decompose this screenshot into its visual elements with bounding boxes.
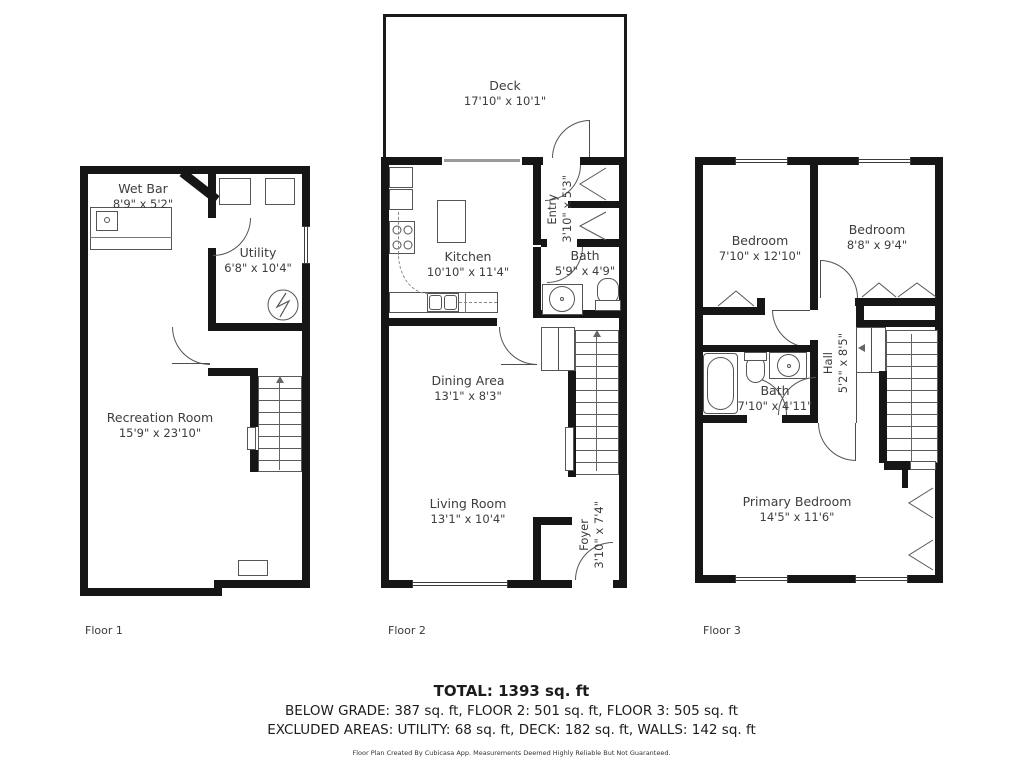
stove-burners-icon xyxy=(389,221,415,254)
wall-segment xyxy=(908,575,943,583)
plan-element xyxy=(268,290,298,320)
fixture-detail xyxy=(560,297,564,301)
wall-segment xyxy=(757,298,765,307)
wall-segment xyxy=(695,157,703,583)
plan-element: Foyer xyxy=(577,519,591,551)
room-name: Deck xyxy=(464,78,546,93)
plan-element: 3'10" x 5'3" xyxy=(560,175,574,243)
utility-window xyxy=(302,226,310,264)
room-label-recreation: Recreation Room 15'9" x 23'10" xyxy=(107,410,213,440)
wall-segment xyxy=(568,201,619,208)
wall-segment xyxy=(788,575,855,583)
wall-segment xyxy=(619,157,627,588)
primary-window xyxy=(855,575,908,583)
plan-element: 3'10" x 7'4" xyxy=(592,501,606,569)
room-dimensions: 17'10" x 10'1" xyxy=(464,94,546,108)
room-label-bath2: Bath 5'9" x 4'9" xyxy=(555,248,615,278)
wall-segment xyxy=(902,470,908,488)
stair-direction-arrow xyxy=(276,376,284,383)
area-breakdown: BELOW GRADE: 387 sq. ft, FLOOR 2: 501 sq… xyxy=(0,703,1023,719)
door-leaf xyxy=(855,423,856,461)
stairs-floor1 xyxy=(258,376,302,472)
rec-room-door-swing xyxy=(172,327,210,365)
stair-direction-arrow xyxy=(858,344,865,352)
floor-opening xyxy=(910,461,936,470)
wall-segment xyxy=(856,320,940,327)
room-dimensions: 13'1" x 10'4" xyxy=(430,512,507,526)
room-label-entry: Entry 3'10" x 5'3" xyxy=(545,180,574,238)
washer xyxy=(219,178,251,205)
kitchen-island xyxy=(437,200,466,243)
room-dimensions: 8'9" x 5'2" xyxy=(113,197,173,211)
wall-segment xyxy=(250,376,258,427)
room-name: Bedroom xyxy=(719,233,801,248)
closet-door-icon xyxy=(898,281,936,298)
window-well xyxy=(238,560,268,576)
room-dimensions: 7'10" x 4'11" xyxy=(738,399,813,413)
room-label-wet-bar: Wet Bar 8'9" x 5'2" xyxy=(113,181,173,211)
wall-segment xyxy=(302,166,310,226)
wall-segment xyxy=(80,166,310,174)
counter-dashed-curve xyxy=(398,254,428,294)
plan-element xyxy=(277,293,289,317)
room-label-primary: Primary Bedroom 14'5" x 11'6" xyxy=(743,494,852,524)
room-name: Utility xyxy=(224,245,292,260)
plan-element xyxy=(580,168,606,200)
stair-direction-arrow xyxy=(593,330,601,337)
plan-element xyxy=(404,226,412,234)
wall-segment xyxy=(884,461,910,470)
wall-segment xyxy=(381,318,497,326)
bedroom-door-swing xyxy=(772,310,810,348)
plan-element xyxy=(909,540,933,570)
plan-element xyxy=(862,283,896,297)
fixture-detail xyxy=(787,364,791,368)
bedroom-window xyxy=(858,157,911,165)
living-room-window xyxy=(412,580,508,588)
door-leaf xyxy=(172,363,210,364)
room-dimensions: 10'10" x 11'4" xyxy=(427,265,509,279)
room-name: Recreation Room xyxy=(107,410,213,425)
wall-segment xyxy=(613,580,627,588)
room-label-foyer: Foyer 3'10" x 7'4" xyxy=(577,506,606,564)
closet-door-icon xyxy=(906,540,934,570)
wall-segment xyxy=(695,345,810,352)
bedroom-door-swing xyxy=(820,260,858,298)
fixture-detail xyxy=(104,217,110,223)
toilet-tank xyxy=(595,300,621,311)
wall-segment xyxy=(533,519,541,580)
room-label-bath3: Bath 7'10" x 4'11" xyxy=(738,383,813,413)
room-label-hall: Hall 5'2" x 8'5" xyxy=(821,333,850,393)
room-name: Dining Area xyxy=(431,373,504,388)
wall-segment xyxy=(381,580,412,588)
primary-window xyxy=(735,575,788,583)
wall-segment xyxy=(208,174,216,218)
floor-line xyxy=(90,237,172,238)
wall-segment xyxy=(810,165,818,298)
wall-segment xyxy=(533,165,541,245)
floor-opening xyxy=(247,427,256,450)
wall-segment xyxy=(80,588,222,596)
wall-segment xyxy=(577,239,627,247)
stair-rail xyxy=(279,382,280,470)
room-label-deck: Deck 17'10" x 10'1" xyxy=(464,78,546,108)
room-label-bedroom-right: Bedroom 8'8" x 9'4" xyxy=(847,222,907,252)
wall-segment xyxy=(788,157,858,165)
total-area: TOTAL: 1393 sq. ft xyxy=(0,682,1023,700)
counter-dashed-line xyxy=(398,212,399,254)
door-leaf xyxy=(589,120,590,158)
wall-segment xyxy=(695,415,747,423)
plan-element xyxy=(718,291,754,306)
door-leaf xyxy=(501,364,537,365)
wall-segment xyxy=(522,157,543,165)
area-summary: TOTAL: 1393 sq. ft BELOW GRADE: 387 sq. … xyxy=(0,682,1023,757)
wall-segment xyxy=(782,415,818,423)
wall-segment xyxy=(208,248,216,330)
wall-segment xyxy=(533,247,541,318)
disclaimer: Floor Plan Created By Cubicasa App. Meas… xyxy=(0,749,1023,757)
wall-segment xyxy=(695,575,735,583)
plan-element: Entry xyxy=(545,194,559,225)
cabinet xyxy=(389,189,413,210)
room-name: Kitchen xyxy=(427,249,509,264)
primary-door-swing xyxy=(818,423,856,461)
dryer xyxy=(265,178,295,205)
stair-rail xyxy=(596,336,597,471)
closet-door-icon xyxy=(906,488,934,518)
bedroom-window xyxy=(735,157,788,165)
wall-segment xyxy=(381,157,389,588)
floor-2-tag: Floor 2 xyxy=(388,624,426,637)
plan-element: 5'2" x 8'5" xyxy=(836,333,850,393)
stairs-floor2 xyxy=(575,330,619,475)
room-dimensions: 8'8" x 9'4" xyxy=(847,238,907,252)
floor-line xyxy=(871,328,872,372)
door-leaf xyxy=(820,260,821,298)
wall-segment xyxy=(879,371,887,463)
floor-line xyxy=(558,328,559,370)
room-label-living: Living Room 13'1" x 10'4" xyxy=(430,496,507,526)
floor-1-tag: Floor 1 xyxy=(85,624,123,637)
dining-door-swing xyxy=(499,327,537,365)
wall-segment xyxy=(208,323,310,331)
wall-segment xyxy=(208,368,258,376)
room-name: Bath xyxy=(555,248,615,263)
fridge xyxy=(389,167,413,188)
door-leaf xyxy=(772,310,810,311)
closet-door-icon xyxy=(578,212,608,240)
wall-segment xyxy=(214,580,310,588)
room-name: Bath xyxy=(738,383,813,398)
water-heater-icon xyxy=(266,288,300,322)
fixture-detail xyxy=(444,295,457,310)
stairs-floor3 xyxy=(886,330,938,463)
room-label-kitchen: Kitchen 10'10" x 11'4" xyxy=(427,249,509,279)
excluded-areas: EXCLUDED AREAS: UTILITY: 68 sq. ft, DECK… xyxy=(0,722,1023,738)
sliding-glass-door xyxy=(444,159,520,162)
room-dimensions: 13'1" x 8'3" xyxy=(431,389,504,403)
wall-segment xyxy=(695,307,765,315)
wall-segment xyxy=(810,298,818,310)
wall-segment xyxy=(214,580,222,596)
plan-element xyxy=(909,488,933,518)
room-dimensions: 5'9" x 4'9" xyxy=(555,264,615,278)
room-dimensions: 6'8" x 10'4" xyxy=(224,261,292,275)
wall-segment xyxy=(381,157,442,165)
floor-line xyxy=(856,327,857,423)
room-dimensions: 7'10" x 12'10" xyxy=(719,249,801,263)
toilet-tank xyxy=(744,352,767,361)
wall-segment xyxy=(508,580,572,588)
bathtub-basin xyxy=(707,357,734,410)
floor-plan-canvas: Wet Bar 8'9" x 5'2" Utility 6'8" x 10'4"… xyxy=(0,0,1023,768)
wall-segment xyxy=(80,166,88,596)
plan-element xyxy=(580,212,606,240)
wall-segment xyxy=(541,239,547,247)
plan-element xyxy=(404,241,412,249)
closet-door-icon xyxy=(862,281,896,298)
room-name: Wet Bar xyxy=(113,181,173,196)
room-name: Living Room xyxy=(430,496,507,511)
plan-element xyxy=(393,241,401,249)
room-name: Bedroom xyxy=(847,222,907,237)
room-label-dining: Dining Area 13'1" x 8'3" xyxy=(431,373,504,403)
counter-dashed-line xyxy=(459,302,497,303)
stair-rail xyxy=(911,334,912,461)
floor-3-tag: Floor 3 xyxy=(703,624,741,637)
plan-element xyxy=(898,283,936,297)
plan-element xyxy=(393,226,401,234)
room-label-bedroom-left: Bedroom 7'10" x 12'10" xyxy=(719,233,801,263)
wall-segment xyxy=(855,298,940,306)
fixture-detail xyxy=(429,295,442,310)
closet-door-icon xyxy=(718,289,754,307)
wall-segment xyxy=(250,450,258,472)
plan-element: Hall xyxy=(821,352,835,374)
room-dimensions: 14'5" x 11'6" xyxy=(743,510,852,524)
room-dimensions: 15'9" x 23'10" xyxy=(107,426,213,440)
room-label-utility: Utility 6'8" x 10'4" xyxy=(224,245,292,275)
room-name: Primary Bedroom xyxy=(743,494,852,509)
closet-door-icon xyxy=(578,168,608,200)
wall-segment xyxy=(302,264,310,588)
floor-opening xyxy=(565,427,574,471)
